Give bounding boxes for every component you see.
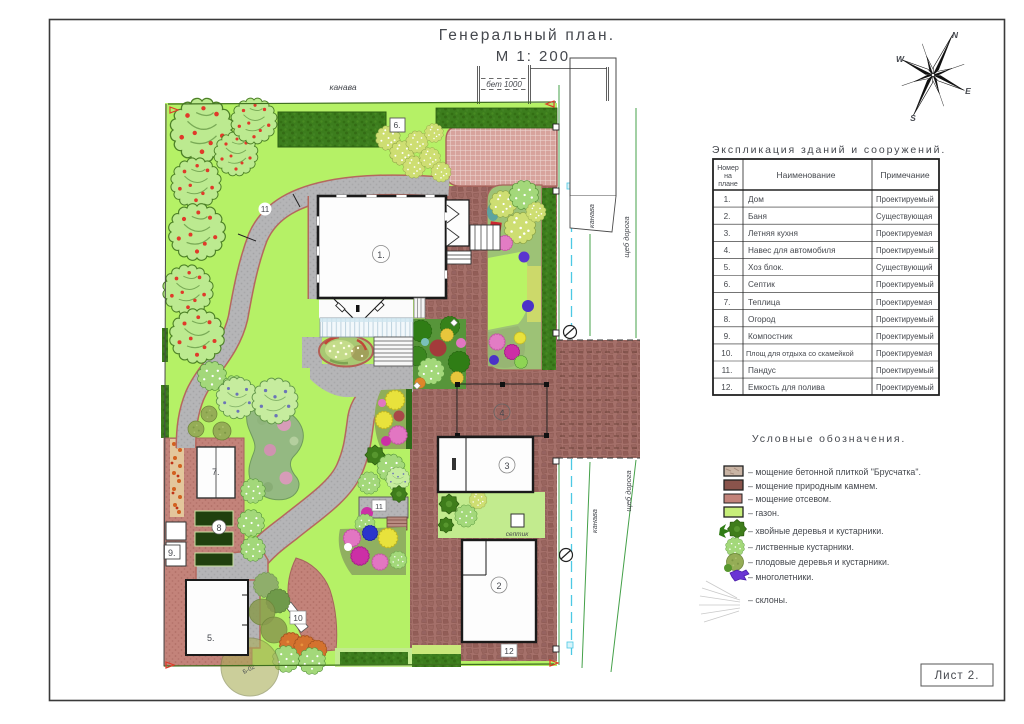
svg-text:канава: канава: [329, 82, 356, 92]
svg-text:Проектируемый: Проектируемый: [876, 383, 934, 392]
svg-text:Номер: Номер: [717, 165, 739, 172]
svg-text:6.: 6.: [393, 120, 400, 130]
svg-text:8: 8: [216, 523, 221, 533]
svg-text:Летняя кухня: Летняя кухня: [748, 229, 798, 238]
svg-text:7.: 7.: [212, 467, 220, 477]
svg-text:– газон.: – газон.: [748, 508, 779, 518]
svg-text:Проектируемый: Проектируемый: [876, 246, 934, 255]
svg-text:7.: 7.: [724, 298, 731, 307]
svg-text:Проектируемый: Проектируемый: [876, 315, 934, 324]
svg-text:– хвойные деревья и кустар: – хвойные деревья и кустарники.: [748, 526, 884, 536]
svg-text:Хоз блок.: Хоз блок.: [748, 263, 783, 272]
svg-text:– мощение природным камне: – мощение природным камнем.: [748, 481, 878, 491]
svg-text:– плодовые деревья и куста: – плодовые деревья и кустарники.: [748, 557, 889, 567]
svg-text:Огород: Огород: [748, 315, 776, 324]
svg-text:2: 2: [496, 581, 501, 591]
svg-text:Навес для автомобиля: Навес для автомобиля: [748, 246, 836, 255]
svg-text:Септик: Септик: [748, 280, 775, 289]
svg-text:2.: 2.: [724, 212, 731, 221]
svg-text:4: 4: [499, 408, 504, 418]
svg-text:5.: 5.: [207, 633, 215, 643]
svg-text:септик: септик: [506, 531, 529, 538]
svg-text:канава: канава: [590, 509, 599, 533]
svg-text:Проектируемая: Проектируемая: [876, 349, 932, 358]
svg-text:– склоны.: – склоны.: [748, 595, 787, 605]
svg-text:10: 10: [293, 613, 303, 623]
svg-text:9.: 9.: [168, 548, 176, 558]
svg-text:– мощение бетонной плиткой: – мощение бетонной плиткой "Брусчатка".: [748, 467, 921, 477]
svg-text:Компостник: Компостник: [748, 332, 793, 341]
svg-text:W: W: [896, 54, 905, 64]
svg-text:канава: канава: [587, 204, 596, 228]
svg-text:щеб дорога: щеб дорога: [622, 216, 631, 257]
svg-text:9.: 9.: [724, 332, 731, 341]
svg-text:– многолетники.: – многолетники.: [748, 572, 814, 582]
svg-text:12: 12: [504, 646, 514, 656]
svg-text:на: на: [724, 173, 732, 180]
svg-text:Емкость для полива: Емкость для полива: [748, 383, 825, 392]
svg-text:Проектируемый: Проектируемый: [876, 280, 934, 289]
svg-text:Примечание: Примечание: [880, 170, 929, 180]
svg-text:Проектируемая: Проектируемая: [876, 298, 932, 307]
svg-text:12.: 12.: [721, 383, 732, 392]
svg-text:Проектируемый: Проектируемый: [876, 332, 934, 341]
svg-text:Баня: Баня: [748, 212, 767, 221]
svg-text:Пандус: Пандус: [748, 366, 776, 375]
svg-text:8.: 8.: [724, 315, 731, 324]
svg-text:S: S: [910, 113, 916, 123]
svg-text:Генеральный план.: Генеральный план.: [439, 27, 616, 44]
svg-text:E: E: [965, 86, 971, 96]
svg-text:1.: 1.: [724, 195, 731, 204]
svg-text:Экспликация зданий и сооруж: Экспликация зданий и сооружений.: [712, 144, 946, 156]
svg-text:бет 1000: бет 1000: [486, 80, 522, 89]
svg-text:плане: плане: [718, 181, 738, 188]
svg-text:Существующая: Существующая: [876, 212, 932, 221]
svg-text:4.: 4.: [724, 246, 731, 255]
svg-text:Теплица: Теплица: [748, 298, 781, 307]
svg-text:1.: 1.: [377, 250, 385, 260]
svg-text:Наименование: Наименование: [777, 170, 836, 180]
svg-text:Условные обозначения.: Условные обозначения.: [752, 433, 906, 445]
svg-text:Лист 2.: Лист 2.: [935, 670, 980, 682]
svg-text:11.: 11.: [722, 366, 733, 375]
svg-text:Существующий: Существующий: [876, 263, 933, 272]
svg-text:5.: 5.: [724, 263, 731, 272]
svg-text:3: 3: [504, 461, 509, 471]
svg-text:Площ для отдыха со скамейк: Площ для отдыха со скамейкой: [746, 349, 854, 358]
svg-text:Проектируемый: Проектируемый: [876, 366, 934, 375]
svg-text:10.: 10.: [721, 349, 732, 358]
svg-text:Проектируемая: Проектируемая: [876, 229, 932, 238]
svg-text:Проектируемый: Проектируемый: [876, 195, 934, 204]
svg-text:– мощение отсевом.: – мощение отсевом.: [748, 494, 831, 504]
svg-text:– лиственные кустарники.: – лиственные кустарники.: [748, 542, 854, 552]
svg-text:3.: 3.: [724, 229, 731, 238]
svg-text:М 1: 200.: М 1: 200.: [496, 48, 577, 65]
svg-text:N: N: [952, 30, 959, 40]
svg-text:щеб дорога: щеб дорога: [624, 470, 633, 511]
svg-text:Дом: Дом: [748, 195, 764, 204]
svg-text:6.: 6.: [724, 280, 731, 289]
svg-text:11: 11: [375, 502, 383, 511]
svg-text:11: 11: [261, 205, 270, 214]
